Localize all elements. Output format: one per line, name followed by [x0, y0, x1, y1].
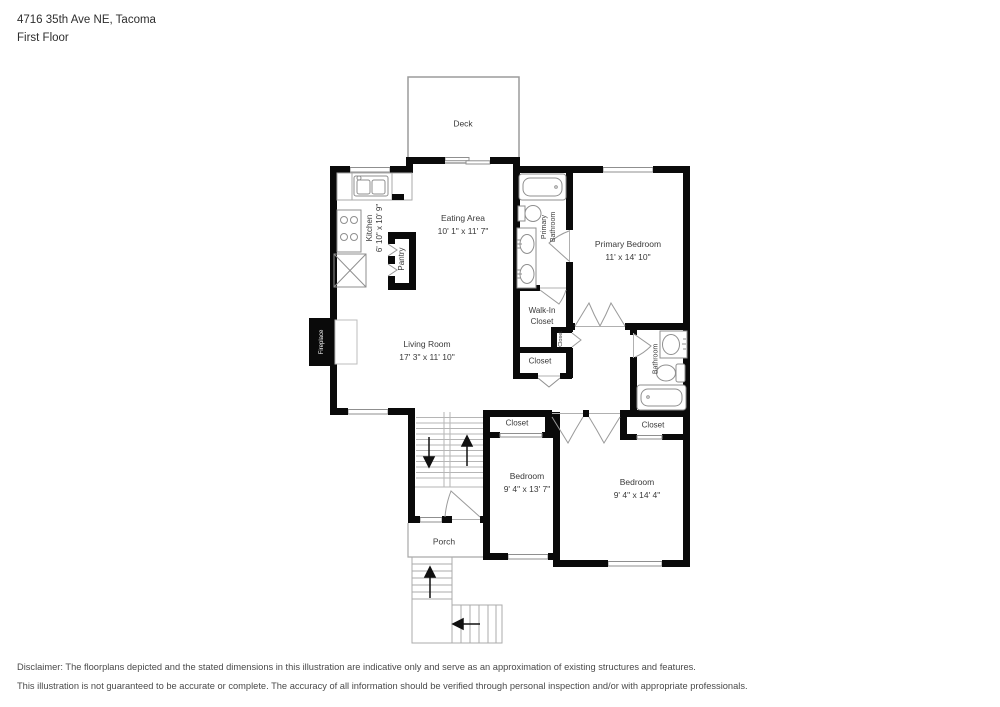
room-label-primary-bathroom: Primary Bathroom [540, 212, 558, 242]
inner-closet-door-arc [572, 333, 581, 347]
counter-corner [392, 194, 404, 200]
room-label-pantry: Pantry [397, 247, 407, 270]
hearth-outline [335, 320, 357, 364]
room-label-deck: Deck [453, 118, 472, 131]
room-label-bathroom: Bathroom [652, 344, 661, 374]
pantry-door-arc [388, 244, 397, 256]
left-arrow-icon [453, 619, 480, 629]
appliance-icon [334, 254, 366, 287]
room-label-closet-left: Closet [506, 417, 529, 430]
room-label-bedroom-right: Bedroom 9' 4" x 14' 4" [614, 476, 661, 502]
room-label-bedroom-left: Bedroom 9' 4" x 13' 7" [504, 470, 551, 496]
fireplace-label: Fireplace [319, 330, 325, 355]
walkin-door-arc [540, 290, 566, 304]
room-label-hall-closet: Closet [529, 355, 552, 368]
disclaimer-line-1: Disclaimer: The floorplans depicted and … [17, 662, 696, 672]
floor-title: First Floor [17, 32, 69, 44]
room-label-eating-area: Eating Area 10' 1" x 11' 7" [438, 212, 489, 238]
address-title: 4716 35th Ave NE, Tacoma [17, 14, 156, 26]
up-arrow-icon [425, 567, 435, 598]
room-label-kitchen: Kitchen 6' 10" x 10' 9" [365, 204, 385, 252]
room-label-living-room: Living Room 17' 3" x 11' 10" [399, 338, 454, 364]
floorplan-page: { "header": { "address": "4716 35th Ave … [0, 0, 1000, 707]
room-label-walkin-closet: Walk-In Closet [529, 305, 556, 327]
exterior-stairs [412, 557, 502, 643]
interior-stairs [415, 412, 483, 487]
down-arrow-icon [424, 437, 434, 467]
primary-bathtub-icon [519, 174, 566, 200]
bedroom-right-door-arc [589, 417, 620, 443]
bathroom-toilet-icon [657, 364, 686, 382]
primary-double-door-left [575, 303, 600, 326]
disclaimer-line-2: This illustration is not guaranteed to b… [17, 681, 748, 691]
front-door-arc [445, 491, 480, 517]
room-label-inner-closet: Closet [558, 331, 564, 347]
room-label-porch: Porch [433, 536, 455, 549]
room-label-closet-right: Closet [642, 419, 665, 432]
pantry-door-arc2 [388, 264, 397, 276]
stove-icon [337, 210, 361, 252]
kitchen-sink-icon [354, 176, 388, 196]
bathroom-door-arc [634, 334, 651, 357]
windows [348, 168, 662, 567]
bathroom-sink-icon [660, 331, 687, 358]
bathroom-tub-icon [637, 385, 686, 410]
floorplan-drawing [0, 0, 1000, 707]
primary-sinks-icon [517, 228, 536, 288]
room-label-primary-bedroom: Primary Bedroom 11' x 14' 10" [595, 238, 661, 264]
primary-double-door-right [600, 303, 625, 326]
primary-toilet-icon [518, 206, 541, 222]
